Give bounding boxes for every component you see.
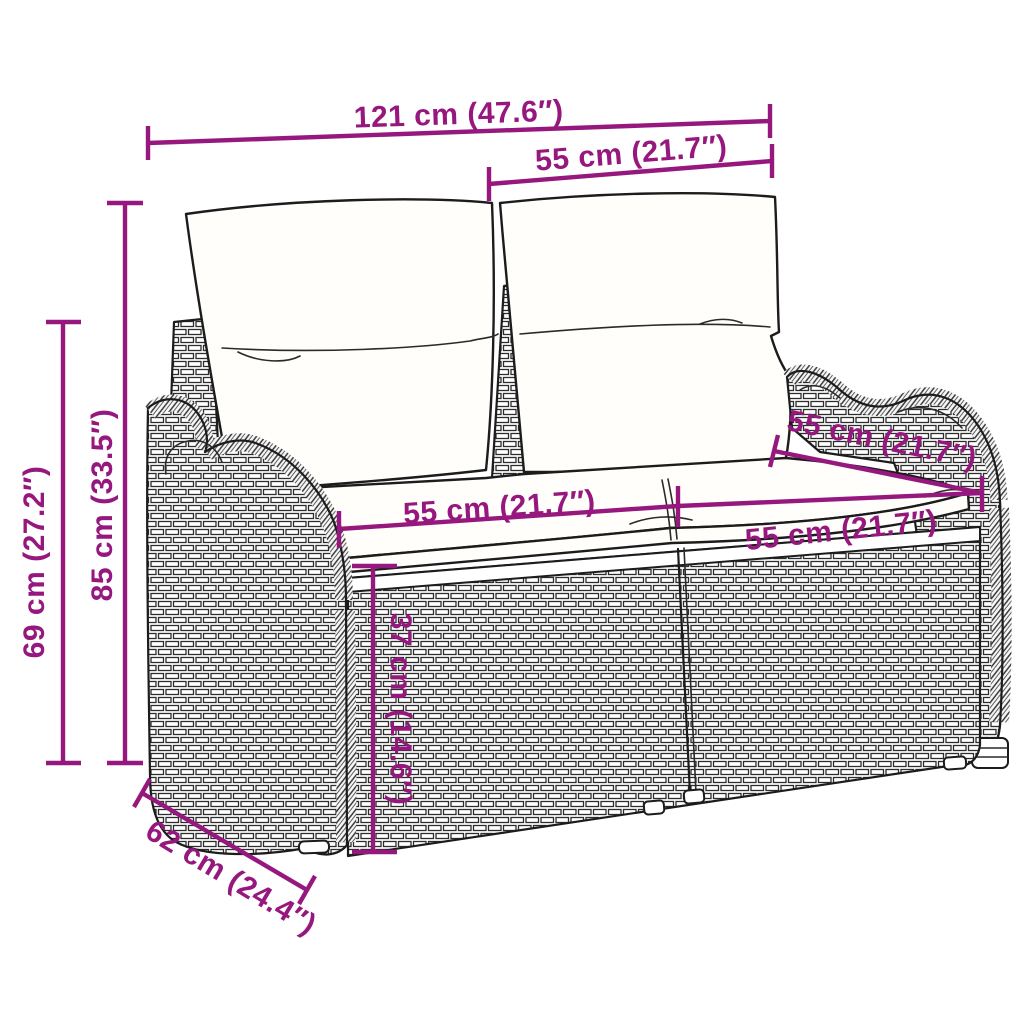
dimension-label-armrest-height: 69 cm (27.2″) [18, 466, 51, 659]
dimension-back-cushion-width: 55 cm (21.7″) [489, 129, 772, 201]
base-foot [684, 789, 705, 804]
left-armrest-foot [299, 840, 329, 853]
dimension-armrest-height: 69 cm (27.2″) [18, 322, 81, 763]
back-cushion-right [500, 193, 791, 472]
dimension-total-height: 85 cm (33.5″) [86, 203, 143, 763]
base-foot [644, 800, 665, 815]
product-dimension-diagram: 121 cm (47.6″) 55 cm (21.7″) 85 cm (33.5… [0, 0, 1024, 1024]
wicker-base [348, 527, 980, 856]
dimension-label-seat-height: 37 cm (14.6″) [384, 613, 417, 806]
base-foot [944, 756, 967, 770]
dimension-label-total-height: 85 cm (33.5″) [86, 409, 119, 602]
